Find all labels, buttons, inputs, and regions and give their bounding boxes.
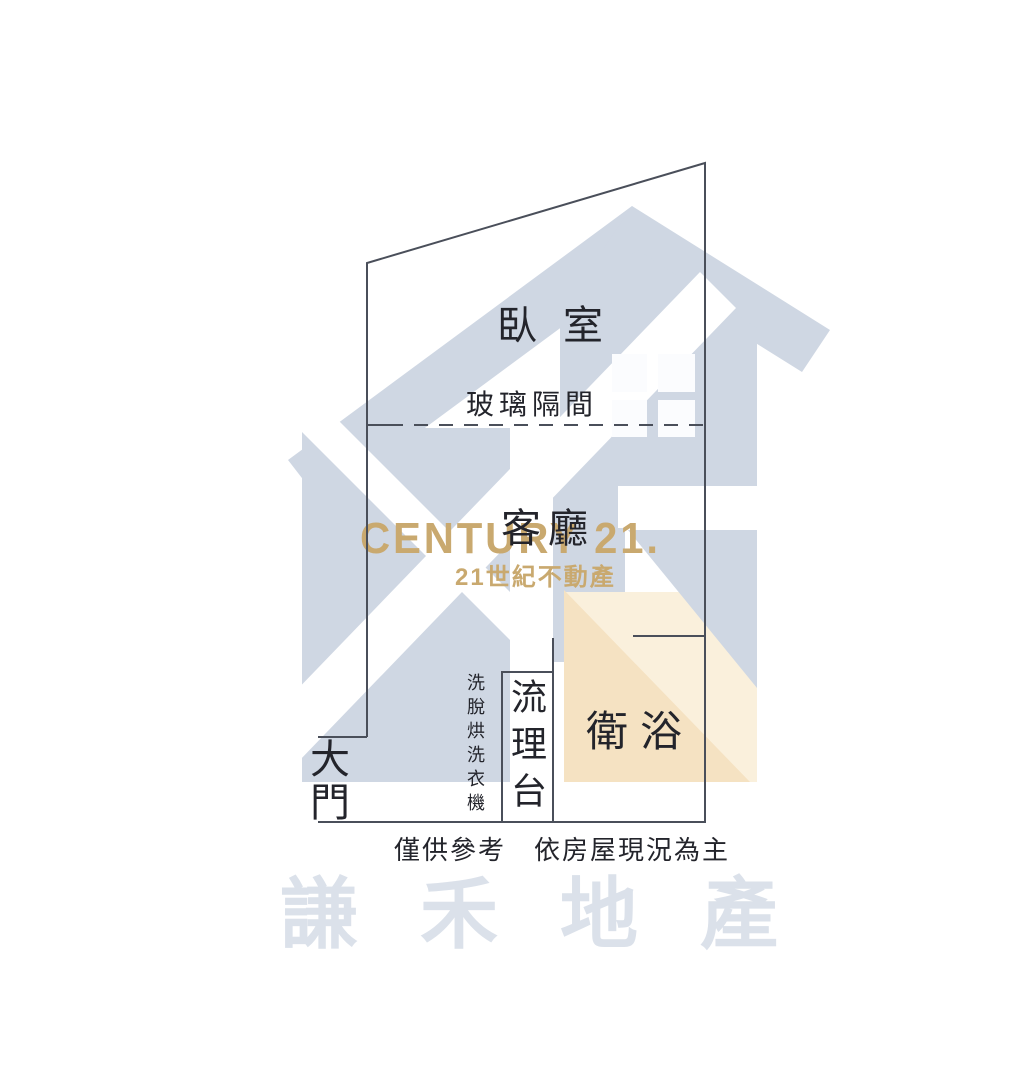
glass-partition-label: 玻璃隔間 — [466, 392, 598, 420]
main-door-label: 大門 — [306, 738, 346, 824]
bathroom-label: 衛浴 — [586, 712, 694, 754]
sink-counter-label: 流理台 — [508, 678, 544, 819]
washer-dryer-label: 洗脫烘洗衣機 — [466, 673, 484, 817]
bedroom-label: 臥室 — [497, 306, 629, 346]
disclaimer-text: 僅供參考 依房屋現況為主 — [394, 838, 730, 864]
floorplan-image: CENTURY 21. 21世紀不動產 謙禾地產 臥室 玻璃隔間 客廳 衛浴 大… — [0, 0, 1024, 1080]
living-room-label: 客廳 — [501, 509, 595, 549]
